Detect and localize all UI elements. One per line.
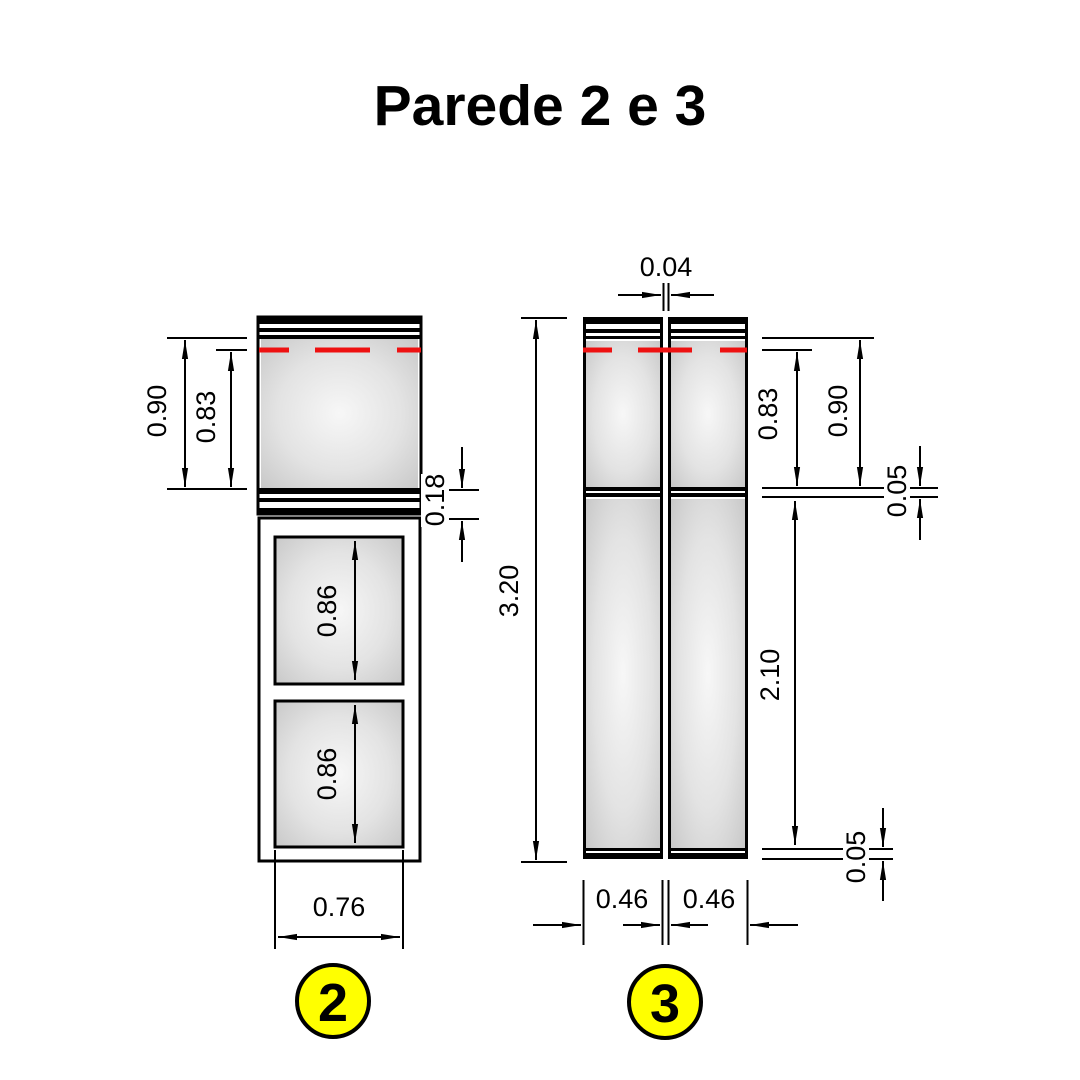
dim-right-total-height: 3.20 <box>494 318 567 862</box>
dimension-label: 0.18 <box>420 474 450 527</box>
panel-top-stripe <box>258 317 421 324</box>
dim-right-lower-height: 2.10 <box>755 501 795 845</box>
panel-glass-area <box>261 339 418 488</box>
dimension-label: 0.76 <box>313 892 366 922</box>
dim-right-0-83: 0.83 <box>753 350 812 486</box>
technical-drawing-page: Parede 2 e 3 0.90 0.83 <box>0 0 1080 1080</box>
dimension-label: 2.10 <box>755 649 785 702</box>
dimension-label: 0.86 <box>312 748 342 801</box>
panel-top-stripe <box>583 336 662 339</box>
panel-top-stripe <box>668 317 747 324</box>
wall-3-badge: 3 <box>629 966 701 1038</box>
panel-top-stripe <box>258 335 421 339</box>
wall-2-badge: 2 <box>297 965 369 1037</box>
panel-bottom-stripe <box>258 498 421 502</box>
left-wall-upper-panel <box>258 317 421 514</box>
dimension-label: 0.05 <box>841 831 871 884</box>
drawing-canvas: Parede 2 e 3 0.90 0.83 <box>0 0 1080 1080</box>
dimension-label: 0.83 <box>753 388 783 441</box>
panel-bottom-stripe <box>258 508 421 514</box>
dimension-label: 0.86 <box>312 585 342 638</box>
panel-top-stripe <box>668 329 747 333</box>
panel-mid-stripe <box>583 493 662 497</box>
dim-left-width: 0.76 <box>275 850 403 949</box>
badge-number: 3 <box>650 974 680 1034</box>
panel-mid-stripe <box>668 487 747 491</box>
right-wall-panel-right <box>668 317 747 858</box>
dimension-label: 0.83 <box>191 391 221 444</box>
panel-top-stripe <box>258 328 421 332</box>
panel-upper-glass <box>671 341 745 487</box>
panel-bottom-stripe <box>583 848 662 851</box>
dimension-label: 0.46 <box>683 884 736 914</box>
panel-bottom-stripe <box>258 488 421 494</box>
panel-top-stripe <box>583 317 662 324</box>
dimension-label: 0.90 <box>142 385 172 438</box>
left-wall-lower-panel <box>259 518 420 861</box>
panel-bottom-stripe <box>668 848 747 851</box>
dimension-label: 0.04 <box>640 252 693 282</box>
dim-left-0-83: 0.83 <box>191 350 247 487</box>
panel-bottom-stripe <box>668 853 747 858</box>
page-title: Parede 2 e 3 <box>374 74 707 138</box>
dimension-label: 0.05 <box>882 465 912 518</box>
dimension-label: 3.20 <box>494 565 524 618</box>
dimension-label: 0.46 <box>596 884 649 914</box>
panel-bottom-stripe <box>583 853 662 858</box>
panel-lower-glass <box>671 499 745 848</box>
dim-right-lower-band: 0.05 <box>762 808 893 901</box>
panel-upper-glass <box>586 341 660 487</box>
badge-number: 2 <box>318 973 348 1033</box>
dimension-label: 0.90 <box>823 385 853 438</box>
right-wall-elevation: 0.04 3.20 0.83 0.90 0.05 <box>494 252 938 1038</box>
dim-right-upper-band: 0.05 <box>762 446 938 540</box>
panel-lower-glass <box>586 499 660 848</box>
left-wall-elevation: 0.90 0.83 0.18 0.86 0.86 0.76 <box>142 317 479 1037</box>
right-wall-panel-left <box>583 317 662 858</box>
panel-top-stripe <box>583 329 662 333</box>
dim-right-panel-widths: 0.46 0.46 <box>533 880 798 945</box>
panel-top-stripe <box>668 336 747 339</box>
panel-mid-stripe <box>583 487 662 491</box>
dim-left-0-18: 0.18 <box>420 447 479 562</box>
panel-mid-stripe <box>668 493 747 497</box>
dim-right-top-gap: 0.04 <box>618 252 714 311</box>
